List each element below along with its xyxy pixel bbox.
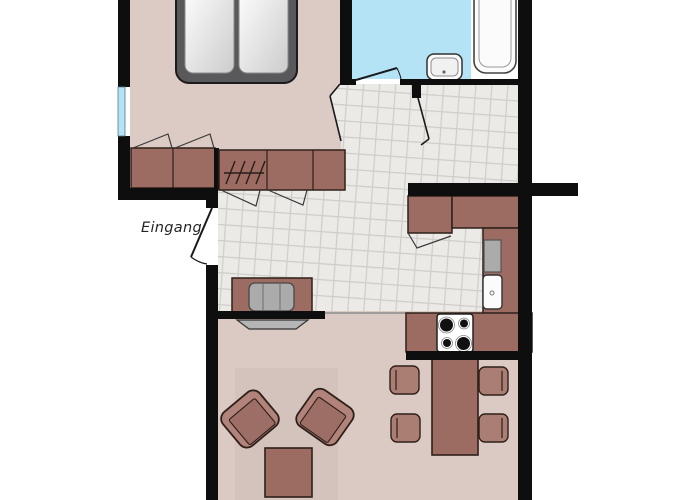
wall-entry-stub [206, 195, 218, 208]
kitchen-counter-top [452, 196, 520, 228]
dining-table [432, 356, 478, 455]
wall-bedroom-bottom [118, 188, 218, 200]
dining-chair [479, 367, 508, 395]
media-device [249, 283, 294, 311]
burner [440, 319, 453, 332]
entrance-label: Eingang [141, 220, 202, 236]
stove [437, 314, 473, 352]
wall-kitchen-door-stub [412, 84, 421, 98]
floorplan-canvas: Eingang [0, 0, 700, 500]
window [118, 87, 130, 136]
mattress-left [185, 0, 234, 73]
bathtub [474, 0, 516, 73]
tv [237, 320, 308, 329]
washbasin [427, 54, 462, 80]
wall-bath-bottom-left [340, 79, 356, 85]
burner [443, 339, 451, 347]
wall-right-outer [518, 0, 532, 500]
wall-bedroom-left-upper [118, 0, 130, 88]
sideboard [232, 278, 312, 312]
burner [457, 337, 470, 350]
dining-chair [391, 414, 420, 442]
wall-kitchen-top [408, 183, 532, 196]
wall-right-stub [532, 183, 578, 196]
wall-kitchen-bottom [406, 351, 532, 360]
coffee-table [265, 448, 312, 497]
entrance-door [191, 208, 212, 264]
dining-chair [479, 414, 508, 442]
double-bed [176, 0, 297, 83]
burner [460, 320, 468, 328]
kitchen-sink [483, 275, 502, 309]
kitchen-cabinet [408, 196, 452, 233]
wall-bed-bath-divider [340, 0, 352, 84]
floorplan-svg: Eingang [0, 0, 700, 500]
wall-hall-living [218, 311, 325, 319]
mattress-right [239, 0, 288, 73]
dishwasher [484, 240, 501, 272]
dining-chair [390, 366, 419, 394]
basin-drain [442, 70, 445, 73]
wall-living-left [206, 265, 218, 500]
